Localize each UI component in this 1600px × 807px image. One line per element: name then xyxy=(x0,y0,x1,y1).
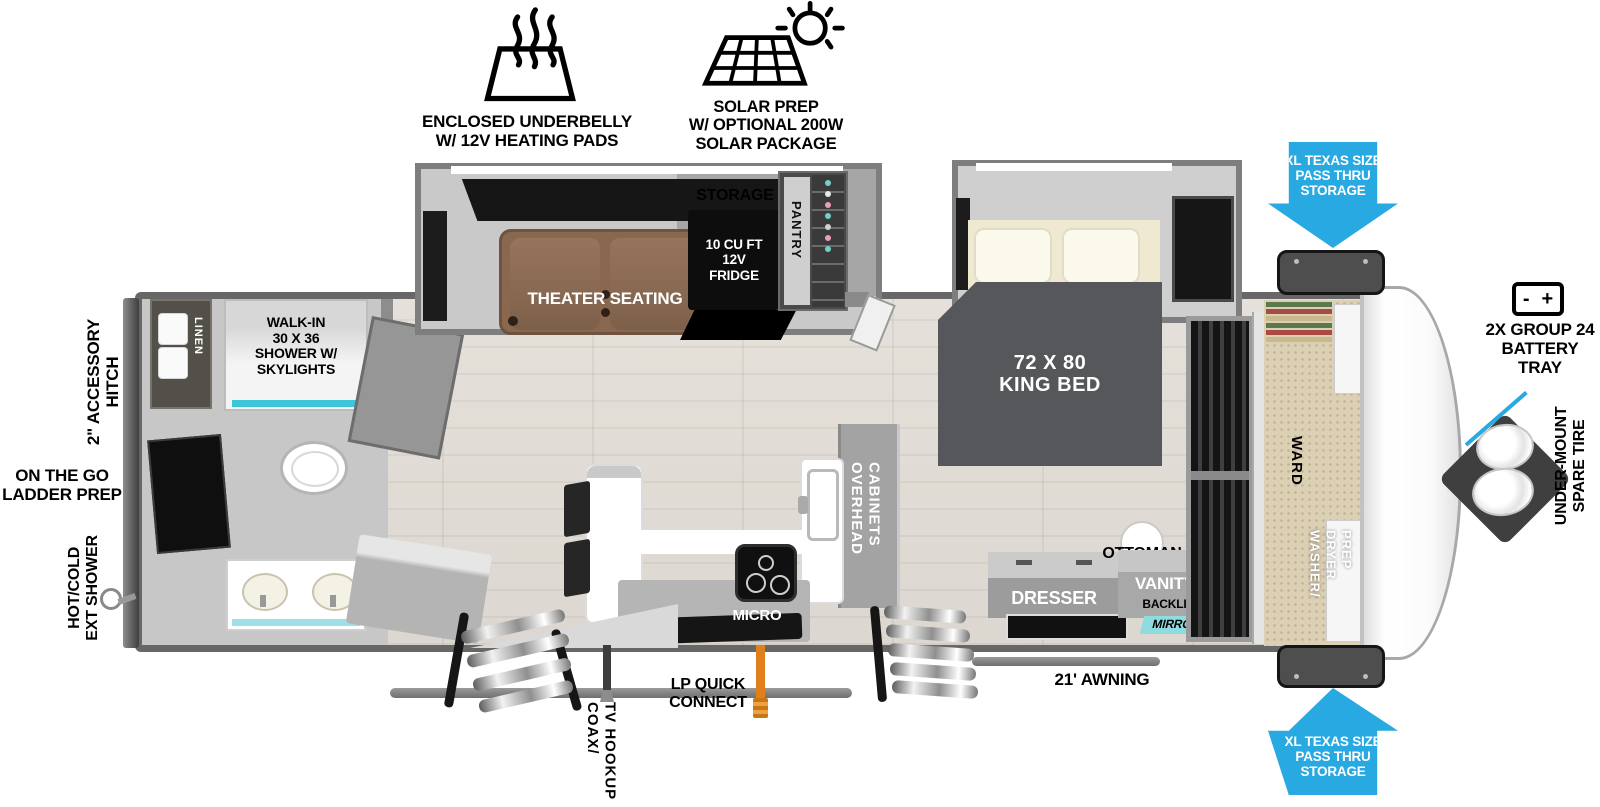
passthru-top-label: XL TEXAS SIZE PASS THRU STORAGE xyxy=(1268,153,1398,198)
seat-cushion xyxy=(610,238,700,330)
heating-pads-icon xyxy=(468,0,592,112)
overhead-cabinets-label: OVERHEAD CABINETS xyxy=(848,462,882,555)
king-bed-label: 72 X 80 KING BED xyxy=(999,352,1101,397)
burner xyxy=(770,575,790,595)
faucet xyxy=(330,595,336,607)
shower-label: WALK-IN 30 X 36 SHOWER W/ SKYLIGHTS xyxy=(226,315,366,378)
entry-steps-main xyxy=(450,604,580,710)
dresser-front: DRESSER xyxy=(988,578,1120,618)
storage-label: STORAGE xyxy=(687,187,783,205)
cupholder xyxy=(508,316,518,326)
bathroom-tv xyxy=(147,434,231,554)
toilet xyxy=(280,441,348,495)
fridge: 10 CU FT 12V FRIDGE xyxy=(688,210,780,310)
pillow xyxy=(974,228,1052,284)
floorplan: LINEN WALK-IN 30 X 36 SHOWER W/ SKYLIGHT… xyxy=(0,0,1600,807)
entry-threshold xyxy=(620,652,798,661)
seat-cushion xyxy=(510,238,600,330)
slideout-exterior-wall xyxy=(976,163,1172,171)
fridge-shadow xyxy=(680,310,800,340)
king-bed: 72 X 80 KING BED xyxy=(938,282,1162,466)
ext-shower-label: HOT/COLD EXT SHOWER xyxy=(66,523,102,653)
pantry-shelves xyxy=(812,175,844,307)
solar-prep-icon xyxy=(698,0,850,98)
washer-dryer-prep-label: WASHER/ DRYER PREP xyxy=(1308,530,1353,598)
bedroom-window-bottom xyxy=(1006,614,1128,640)
bar-stool xyxy=(564,481,590,538)
faucet xyxy=(260,595,266,607)
dresser-label: DRESSER xyxy=(1011,588,1097,608)
faucet xyxy=(798,496,808,514)
cooktop xyxy=(735,544,797,602)
awning-label: 21' AWNING xyxy=(1040,670,1164,689)
cupholder xyxy=(601,308,610,317)
coax-cable xyxy=(603,645,611,693)
island-edge xyxy=(587,466,641,478)
entry-steps-bedroom xyxy=(874,606,978,704)
awning-rail xyxy=(972,657,1160,666)
spare-tire-label: UNDER-MOUNT SPARE TIRE xyxy=(1553,391,1589,541)
passthru-door-top xyxy=(1277,250,1385,295)
bedroom-window-right xyxy=(1172,196,1234,302)
lp-quick-connect-label: LP QUICK CONNECT xyxy=(658,676,758,712)
shower-threshold xyxy=(232,400,360,407)
coax-tv-hookup-label: COAX/ TV HOOKUP xyxy=(584,702,618,807)
towel-stack xyxy=(158,347,188,379)
hanging-clothes xyxy=(1266,302,1332,342)
wardrobe-slat-doors xyxy=(1186,316,1254,642)
accessory-hitch-label: 2" ACCESSORY HITCH xyxy=(84,297,122,467)
solar-label: SOLAR PREP W/ OPTIONAL 200W SOLAR PACKAG… xyxy=(666,98,866,153)
passthru-bottom-label: XL TEXAS SIZE PASS THRU STORAGE xyxy=(1268,734,1398,779)
towel-stack xyxy=(158,313,188,345)
kitchen-sink xyxy=(807,469,839,541)
bar-stool xyxy=(564,539,590,598)
wardrobe-rail xyxy=(1191,471,1249,480)
bath-vanity-sinks xyxy=(226,559,366,631)
passthru-arrow-bottom: XL TEXAS SIZE PASS THRU STORAGE xyxy=(1268,688,1398,795)
walk-in-shower: WALK-IN 30 X 36 SHOWER W/ SKYLIGHTS xyxy=(224,299,368,411)
pantry-label: PANTRY xyxy=(789,201,804,259)
pantry-door: PANTRY xyxy=(784,177,810,305)
dresser-handle xyxy=(1076,560,1092,565)
linen-label: LINEN xyxy=(192,317,204,355)
burner xyxy=(746,573,766,593)
pillow xyxy=(1062,228,1140,284)
dresser-handle xyxy=(1016,560,1032,565)
linen-cabinet: LINEN xyxy=(150,299,212,409)
passthru-door-bottom xyxy=(1277,645,1385,688)
front-wall xyxy=(1252,312,1264,644)
vanity-accent xyxy=(232,619,360,626)
battery-icon: - + xyxy=(1512,282,1564,316)
battery-plus: + xyxy=(1541,288,1553,311)
battery-minus: - xyxy=(1523,288,1530,311)
theater-seat xyxy=(499,229,711,335)
micro-label: MICRO xyxy=(713,608,801,625)
fridge-label: 10 CU FT 12V FRIDGE xyxy=(706,237,763,282)
pantry: PANTRY xyxy=(778,171,848,311)
theater-seating-label: THEATER SEATING xyxy=(505,289,705,308)
battery-tray-label: 2X GROUP 24 BATTERY TRAY xyxy=(1478,320,1600,377)
underbelly-label: ENCLOSED UNDERBELLY W/ 12V HEATING PADS xyxy=(407,112,647,150)
ward-label: WARD xyxy=(1288,436,1305,486)
slideout-side-window xyxy=(423,211,447,321)
burner xyxy=(758,555,774,571)
passthru-arrow-top: XL TEXAS SIZE PASS THRU STORAGE xyxy=(1268,142,1398,248)
theater-slideout: PANORAMIC WINDOW THEATER SEATING STORAGE… xyxy=(415,163,882,335)
ladder-prep-label: ON THE GO LADDER PREP xyxy=(0,466,126,504)
toilet-seat xyxy=(291,451,339,487)
